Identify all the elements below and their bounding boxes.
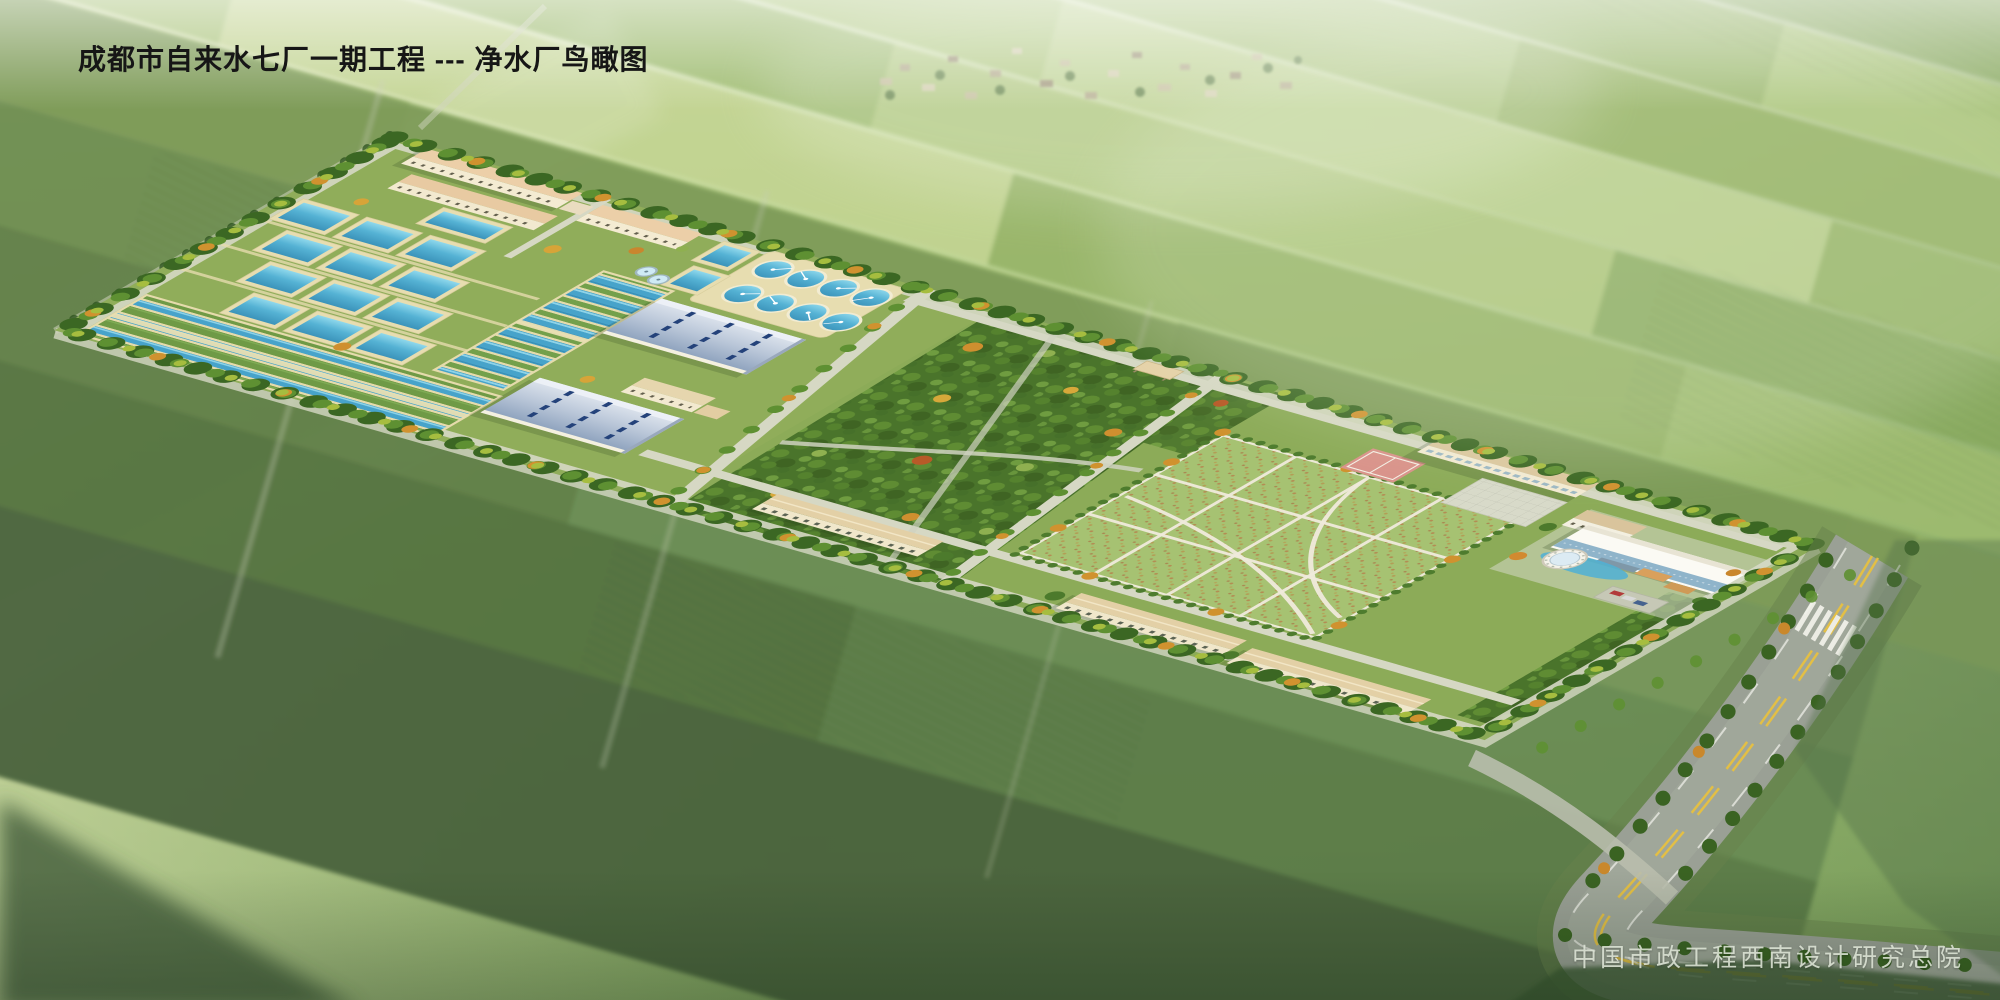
project-title: 成都市自来水七厂一期工程 --- 净水厂鸟瞰图 <box>78 38 649 78</box>
design-institute-credit: 中国市政工程西南设计研究总院 <box>1572 938 1964 974</box>
aerial-rendering: 成都市自来水七厂一期工程 --- 净水厂鸟瞰图 中国市政工程西南设计研究总院 <box>0 0 2000 1000</box>
scene-svg <box>0 0 2000 1000</box>
